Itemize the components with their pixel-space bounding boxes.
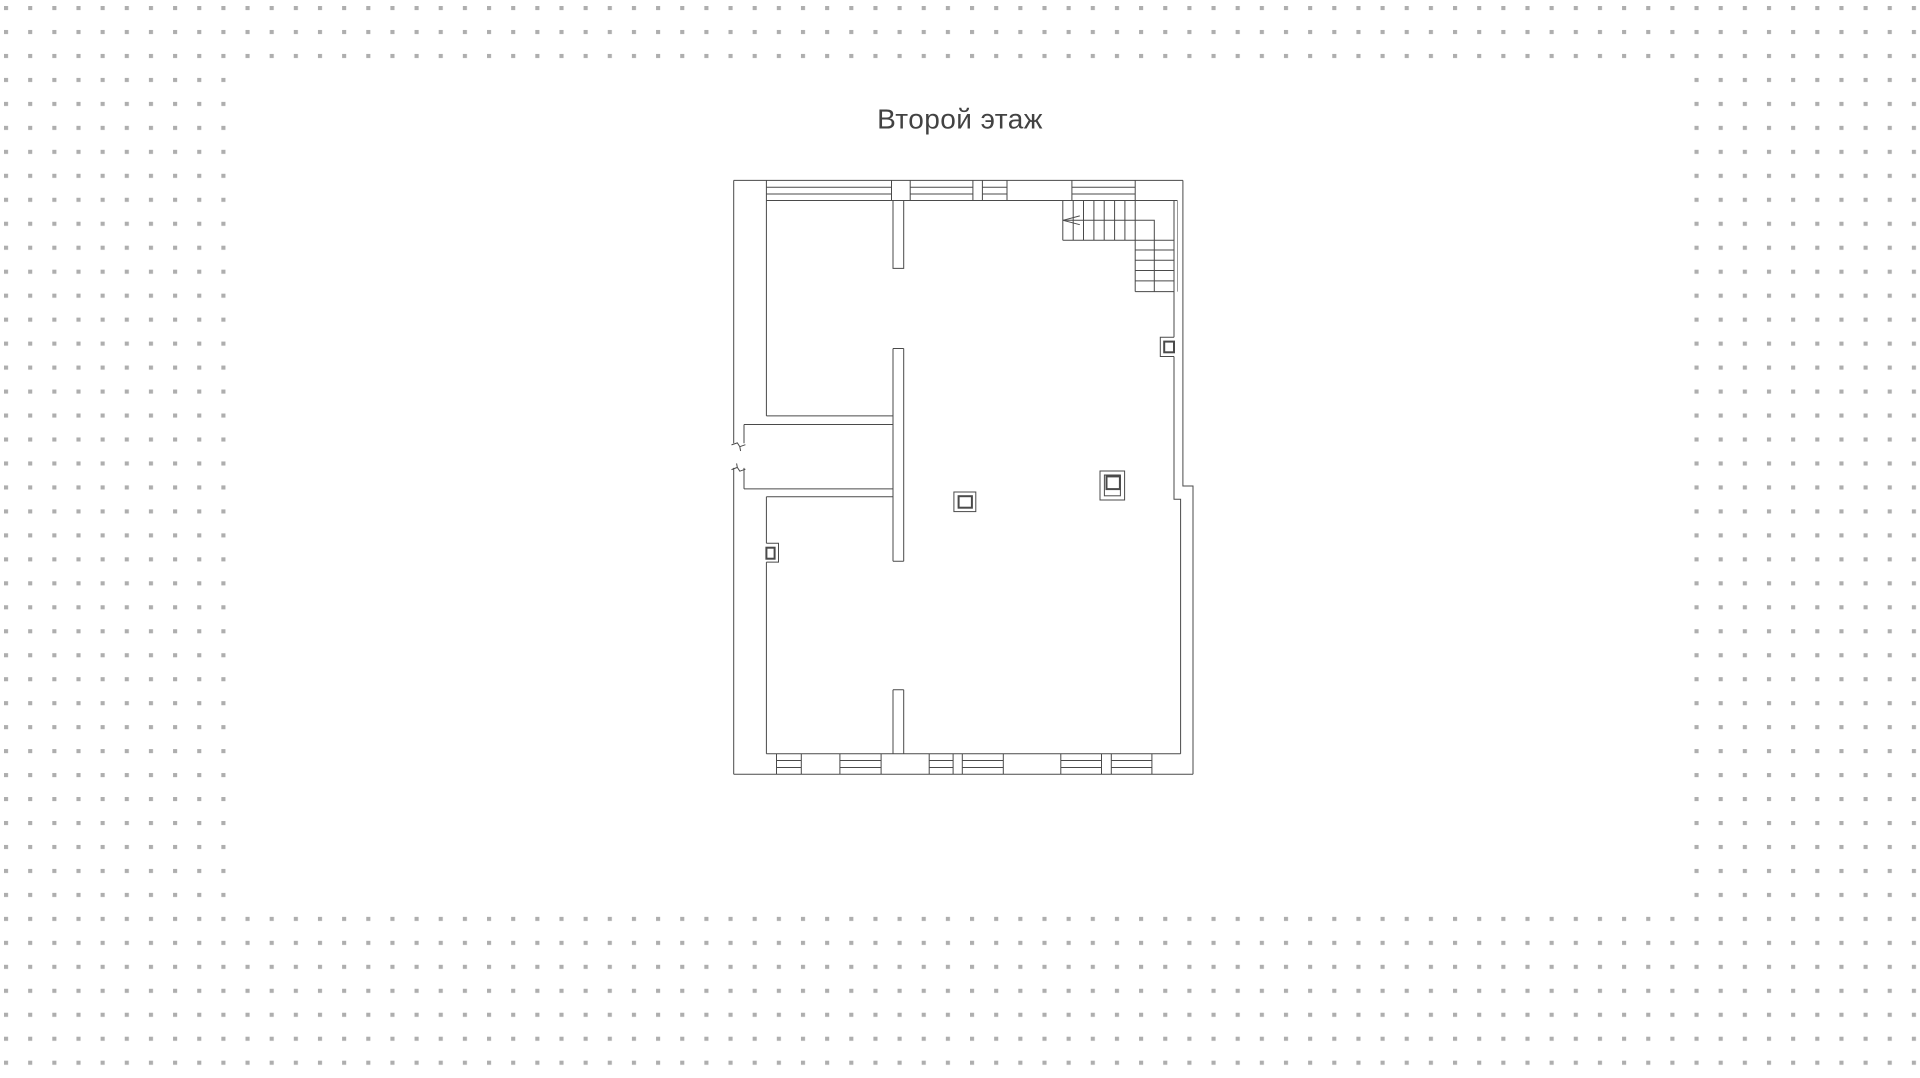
svg-text:Второй этаж: Второй этаж <box>877 104 1043 135</box>
